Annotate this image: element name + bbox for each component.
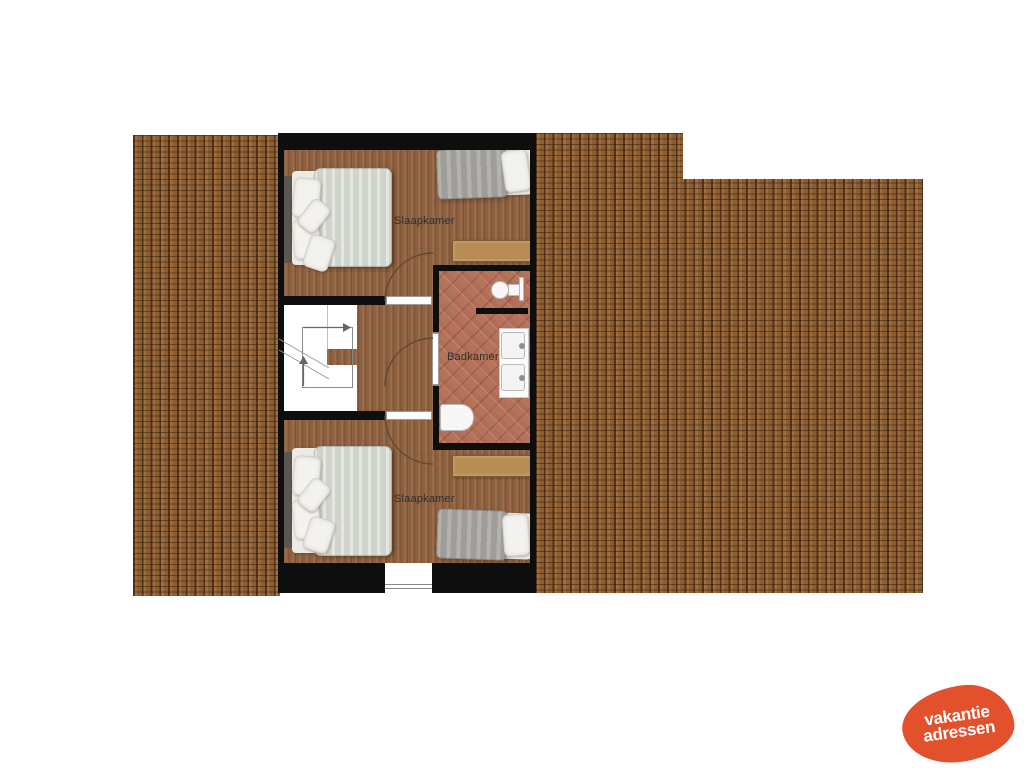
door-arc-bottom-bedroom [385, 416, 433, 464]
floorplan-canvas: Slaapkamer Badkamer Slaapkamer vakantie … [0, 0, 1024, 768]
plan-linework [0, 0, 1024, 768]
room-label-slaapkamer-top: Slaapkamer [394, 215, 455, 227]
door-arc-top-bedroom [385, 253, 433, 301]
door-arc-bathroom [385, 338, 433, 386]
room-label-badkamer: Badkamer [447, 351, 499, 363]
stairs-exit-arrow-head [343, 323, 351, 332]
room-label-slaapkamer-bottom: Slaapkamer [394, 493, 455, 505]
logo-wordmark: vakantie adressen [920, 703, 996, 745]
stairs-up-arrow-head [299, 356, 308, 364]
